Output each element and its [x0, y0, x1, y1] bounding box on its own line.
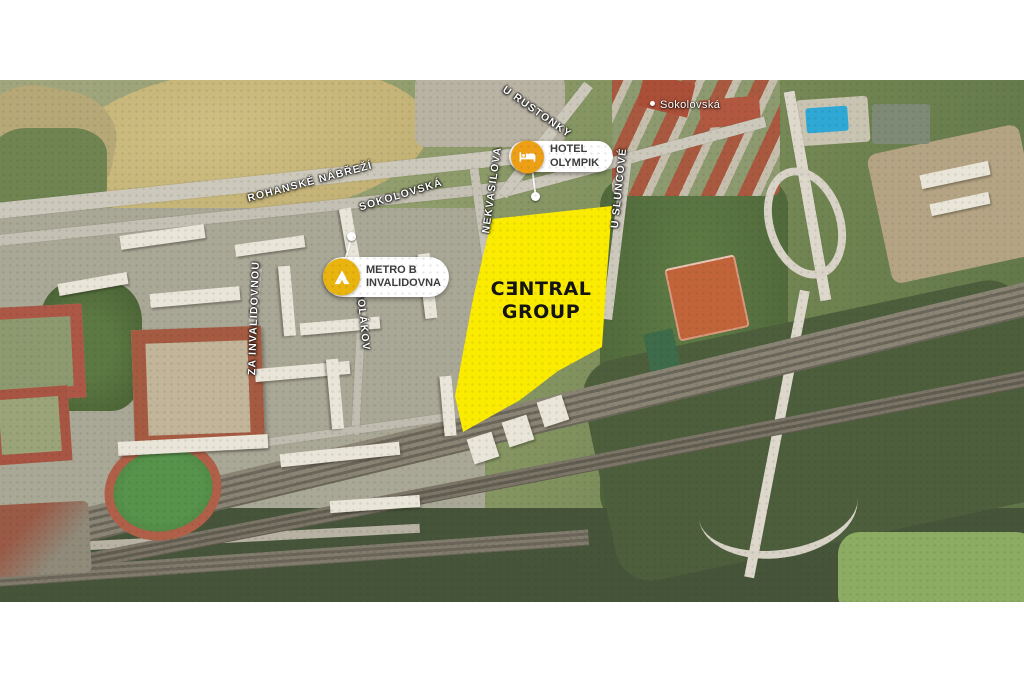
central-group-logo: CƎNTRAL GROUP [491, 278, 592, 324]
metro-label-line2: INVALIDOVNA [366, 277, 441, 290]
logo-line1: CƎNTRAL [491, 278, 592, 301]
metro-label-line1: METRO B [366, 264, 441, 277]
street-label-sokolovska-small: Sokolovská [660, 99, 720, 111]
metro-logo-icon [332, 267, 352, 287]
hotel-label-line2: OLYMPIK [550, 157, 599, 170]
metro-invalidovna-marker[interactable]: METRO B INVALIDOVNA [323, 257, 449, 297]
sokolovska-map-dot [650, 101, 655, 106]
metro-label: METRO B INVALIDOVNA [366, 264, 441, 290]
hotel-label-line1: HOTEL [550, 143, 599, 156]
hotel-olympik-marker[interactable]: HOTEL OLYMPIK [509, 141, 613, 172]
metro-marker-dot [347, 232, 356, 241]
hotel-marker-dot [531, 192, 540, 201]
hotel-badge [511, 140, 544, 173]
bed-icon [518, 147, 537, 166]
page: { "site": { "brand_line1": "CƎNTRAL", "b… [0, 0, 1024, 683]
satellite-map: CƎNTRAL GROUP ROHANSKÉ NÁBŘEŽÍ SOKOLOVSK… [0, 80, 1024, 602]
logo-line2: GROUP [491, 301, 592, 324]
metro-badge [323, 259, 360, 296]
hotel-label: HOTEL OLYMPIK [550, 143, 599, 169]
